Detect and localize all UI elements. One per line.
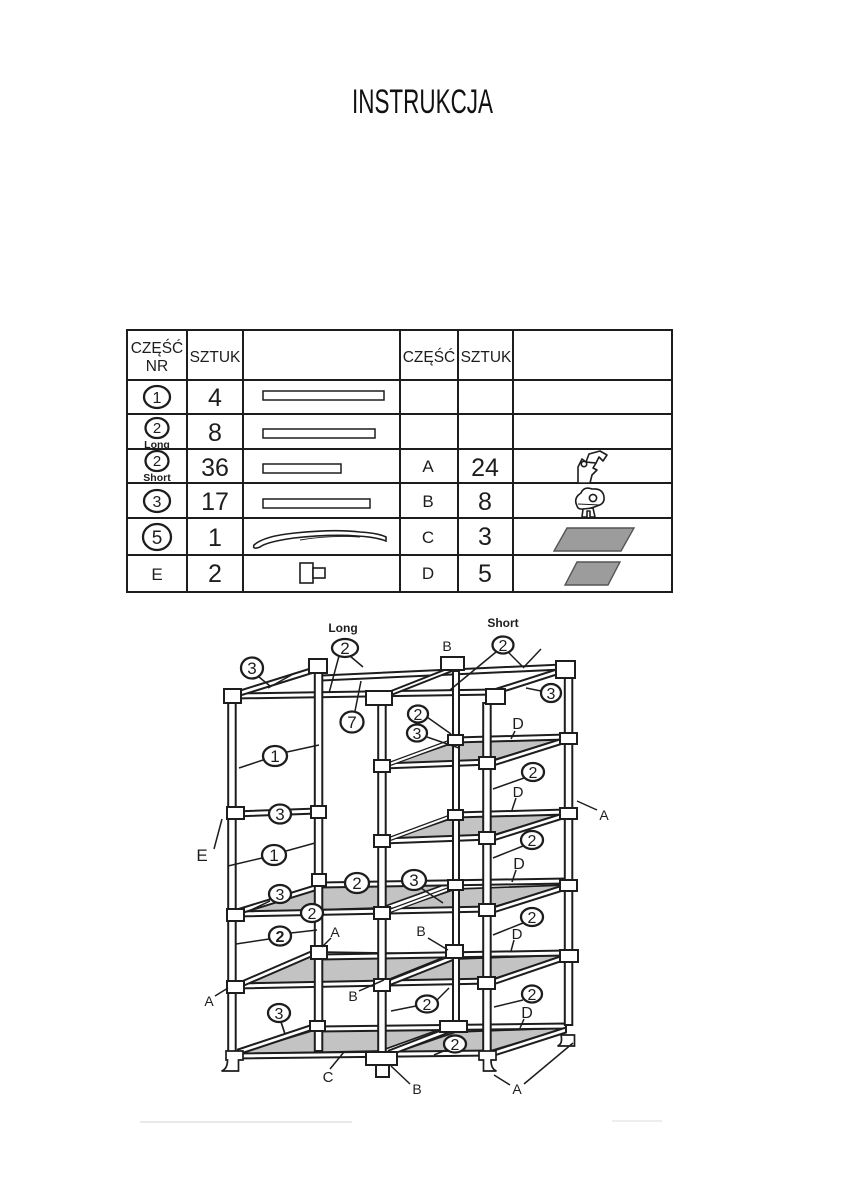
svg-text:D: D	[521, 1005, 533, 1022]
svg-text:D: D	[512, 926, 523, 943]
svg-text:2: 2	[528, 910, 537, 927]
svg-text:A: A	[422, 457, 434, 476]
svg-text:D: D	[422, 564, 434, 583]
svg-text:Long: Long	[328, 621, 357, 635]
svg-text:Long: Long	[144, 439, 170, 451]
svg-text:2: 2	[423, 997, 432, 1014]
svg-text:2: 2	[276, 929, 285, 946]
svg-text:2: 2	[352, 874, 361, 893]
svg-text:B: B	[416, 923, 425, 939]
svg-text:3: 3	[547, 686, 556, 703]
svg-text:Short: Short	[487, 616, 518, 630]
svg-text:8: 8	[208, 419, 222, 447]
svg-text:A: A	[204, 993, 214, 1009]
svg-text:8: 8	[478, 488, 492, 516]
svg-text:3: 3	[153, 494, 162, 511]
svg-text:3: 3	[275, 1006, 284, 1023]
svg-text:CZĘŚĆ: CZĘŚĆ	[403, 348, 456, 366]
svg-text:17: 17	[201, 488, 229, 516]
svg-text:A: A	[599, 807, 609, 823]
svg-text:E: E	[196, 846, 207, 865]
svg-text:Short: Short	[143, 472, 171, 484]
svg-text:B: B	[422, 492, 433, 511]
svg-text:D: D	[513, 784, 524, 801]
svg-text:2: 2	[308, 906, 317, 923]
svg-text:2: 2	[414, 707, 423, 724]
svg-text:1: 1	[270, 747, 279, 766]
svg-text:A: A	[512, 1081, 522, 1097]
svg-text:2: 2	[529, 765, 538, 782]
svg-text:5: 5	[152, 528, 163, 549]
svg-text:2: 2	[499, 638, 508, 655]
svg-text:2: 2	[153, 453, 161, 470]
svg-text:3: 3	[409, 871, 418, 890]
svg-text:1: 1	[269, 846, 278, 865]
svg-text:2: 2	[208, 560, 222, 588]
svg-text:SZTUK: SZTUK	[461, 349, 512, 366]
svg-text:INSTRUKCJA: INSTRUKCJA	[352, 83, 493, 121]
svg-text:2: 2	[451, 1037, 460, 1054]
svg-text:D: D	[512, 716, 524, 733]
svg-text:3: 3	[478, 523, 492, 551]
svg-text:B: B	[348, 988, 357, 1004]
svg-text:4: 4	[208, 384, 222, 412]
svg-text:D: D	[513, 856, 525, 873]
svg-text:1: 1	[153, 390, 162, 407]
svg-text:NR: NR	[146, 358, 168, 375]
svg-text:1: 1	[208, 524, 222, 552]
svg-text:36: 36	[201, 454, 229, 482]
svg-text:CZĘŚĆ: CZĘŚĆ	[131, 339, 184, 357]
svg-text:C: C	[323, 1069, 334, 1086]
svg-text:3: 3	[276, 887, 285, 904]
svg-text:B: B	[412, 1081, 421, 1097]
svg-text:SZTUK: SZTUK	[190, 349, 241, 366]
svg-text:A: A	[330, 924, 340, 940]
svg-text:7: 7	[347, 713, 356, 732]
svg-text:2: 2	[153, 420, 161, 437]
svg-text:5: 5	[478, 560, 492, 588]
svg-text:B: B	[442, 638, 451, 654]
svg-text:2: 2	[340, 639, 349, 658]
svg-text:3: 3	[275, 805, 284, 824]
svg-text:3: 3	[413, 726, 422, 743]
svg-text:C: C	[422, 528, 434, 547]
svg-text:2: 2	[528, 833, 537, 850]
svg-text:2: 2	[528, 987, 537, 1004]
svg-text:3: 3	[247, 659, 256, 678]
svg-text:E: E	[151, 565, 162, 584]
svg-text:24: 24	[471, 454, 499, 482]
